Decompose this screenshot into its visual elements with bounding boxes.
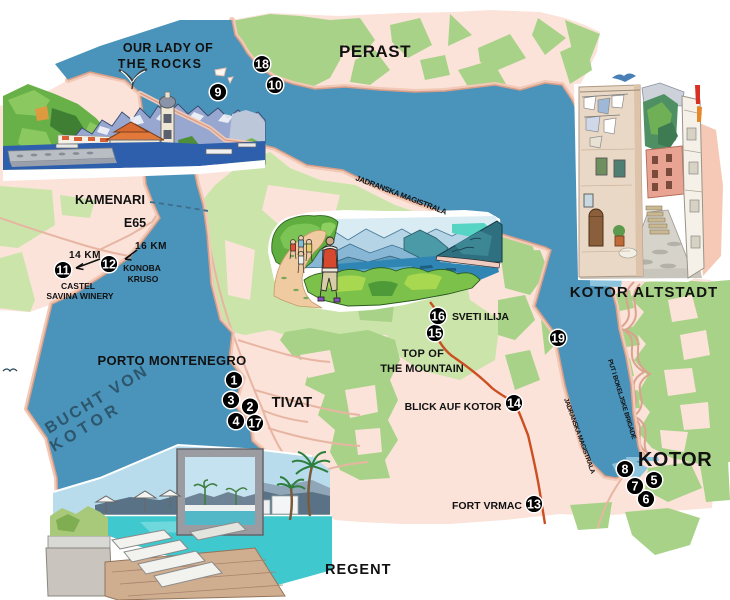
svg-text:1: 1: [231, 374, 238, 388]
svg-text:CASTEL: CASTEL: [61, 281, 95, 291]
svg-text:4: 4: [233, 415, 240, 429]
svg-text:6: 6: [643, 493, 650, 507]
svg-text:THE MOUNTAIN: THE MOUNTAIN: [380, 363, 464, 375]
svg-text:12: 12: [102, 258, 116, 272]
svg-text:KAMENARI: KAMENARI: [75, 192, 145, 207]
svg-text:16: 16: [431, 310, 445, 324]
svg-text:10: 10: [268, 79, 282, 93]
svg-text:KOTOR ALTSTADT: KOTOR ALTSTADT: [570, 284, 718, 301]
svg-text:PORTO MONTENEGRO: PORTO MONTENEGRO: [97, 353, 246, 368]
svg-text:15: 15: [428, 327, 442, 341]
svg-text:2: 2: [247, 400, 254, 414]
svg-text:16 KM: 16 KM: [135, 241, 167, 252]
svg-text:5: 5: [651, 474, 658, 488]
svg-text:KRUSO: KRUSO: [128, 274, 159, 284]
svg-text:SAVINA WINERY: SAVINA WINERY: [46, 291, 114, 301]
svg-text:14: 14: [507, 397, 521, 411]
svg-text:3: 3: [228, 394, 235, 408]
svg-text:9: 9: [215, 86, 222, 100]
svg-text:KOTOR: KOTOR: [638, 449, 712, 471]
svg-text:REGENT: REGENT: [325, 562, 391, 578]
svg-text:KONOBA: KONOBA: [123, 263, 161, 273]
svg-text:14 KM: 14 KM: [69, 250, 101, 261]
svg-text:TOP OF: TOP OF: [402, 348, 444, 360]
svg-text:E65: E65: [124, 216, 146, 230]
svg-text:PERAST: PERAST: [339, 42, 411, 61]
svg-text:SVETI ILIJA: SVETI ILIJA: [452, 311, 509, 323]
svg-text:8: 8: [622, 463, 629, 477]
svg-text:OUR LADY OF: OUR LADY OF: [123, 41, 213, 55]
svg-text:19: 19: [551, 332, 565, 346]
svg-text:11: 11: [56, 264, 69, 278]
svg-text:THE ROCKS: THE ROCKS: [118, 57, 202, 71]
svg-text:TIVAT: TIVAT: [272, 395, 313, 411]
svg-text:BLICK AUF KOTOR: BLICK AUF KOTOR: [405, 401, 502, 413]
svg-text:7: 7: [632, 480, 639, 494]
svg-text:13: 13: [527, 498, 541, 512]
svg-text:18: 18: [255, 58, 269, 72]
svg-text:17: 17: [248, 417, 262, 431]
svg-text:FORT VRMAC: FORT VRMAC: [452, 500, 522, 512]
